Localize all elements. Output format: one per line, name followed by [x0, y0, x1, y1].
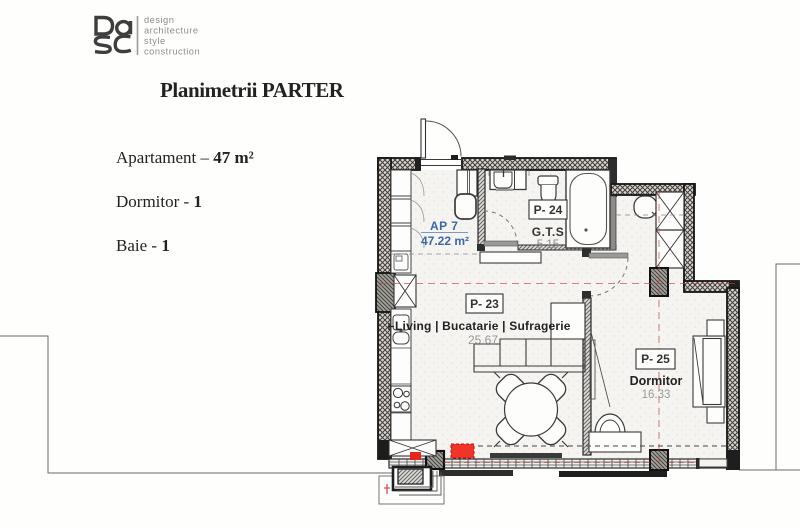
- svg-text:P- 25: P- 25: [641, 352, 670, 366]
- svg-text:47.22 m²: 47.22 m²: [421, 234, 469, 248]
- svg-text:Living | Bucatarie | Sufrageri: Living | Bucatarie | Sufragerie: [395, 319, 571, 333]
- svg-text:AP 7: AP 7: [430, 219, 458, 233]
- svg-text:Dormitor: Dormitor: [630, 374, 683, 388]
- svg-text:16.33: 16.33: [642, 389, 671, 401]
- svg-text:P- 23: P- 23: [470, 297, 499, 311]
- svg-text:25.67: 25.67: [468, 333, 498, 347]
- svg-text:P- 24: P- 24: [534, 203, 563, 217]
- svg-text:5.15: 5.15: [537, 239, 559, 251]
- svg-text:G.T.S: G.T.S: [532, 225, 565, 239]
